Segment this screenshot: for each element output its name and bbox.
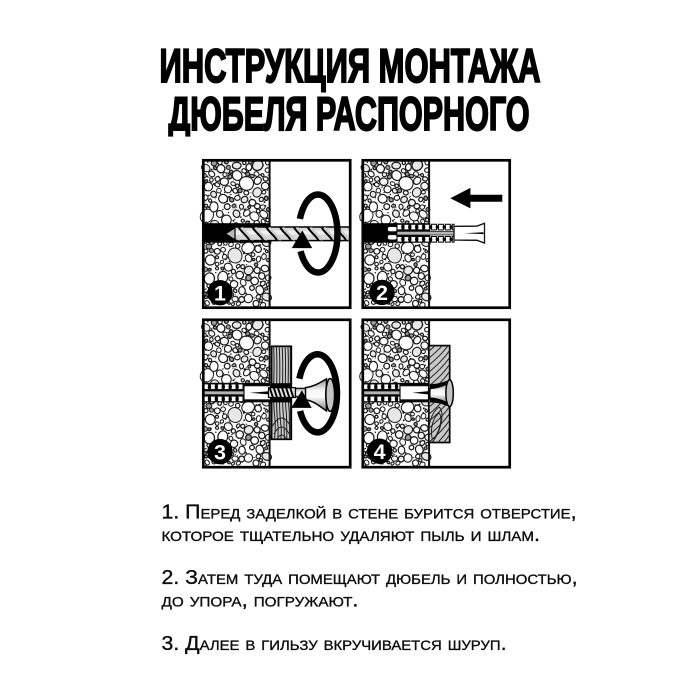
svg-text:ИНСТРУКЦИЯ МОНТАЖА: ИНСТРУКЦИЯ МОНТАЖА [160, 39, 541, 92]
svg-text:3: 3 [214, 440, 226, 464]
svg-text:которое тщательно удаляют пыль: которое тщательно удаляют пыль и шлам. [162, 524, 541, 546]
svg-text:ДЮБЕЛЯ РАСПОРНОГО: ДЮБЕЛЯ РАСПОРНОГО [169, 87, 530, 140]
svg-text:2. Затем туда помещают дюбель: 2. Затем туда помещают дюбель и полность… [162, 567, 578, 589]
svg-text:2: 2 [376, 281, 388, 305]
svg-text:до упора, погружают.: до упора, погружают. [162, 590, 359, 612]
svg-text:4: 4 [374, 440, 386, 464]
svg-text:1. Перед заделкой в стене бури: 1. Перед заделкой в стене бурится отверс… [162, 502, 577, 524]
svg-text:3. Далее в гильзу вкручивается: 3. Далее в гильзу вкручивается шуруп. [162, 633, 507, 655]
svg-text:1: 1 [214, 281, 226, 305]
